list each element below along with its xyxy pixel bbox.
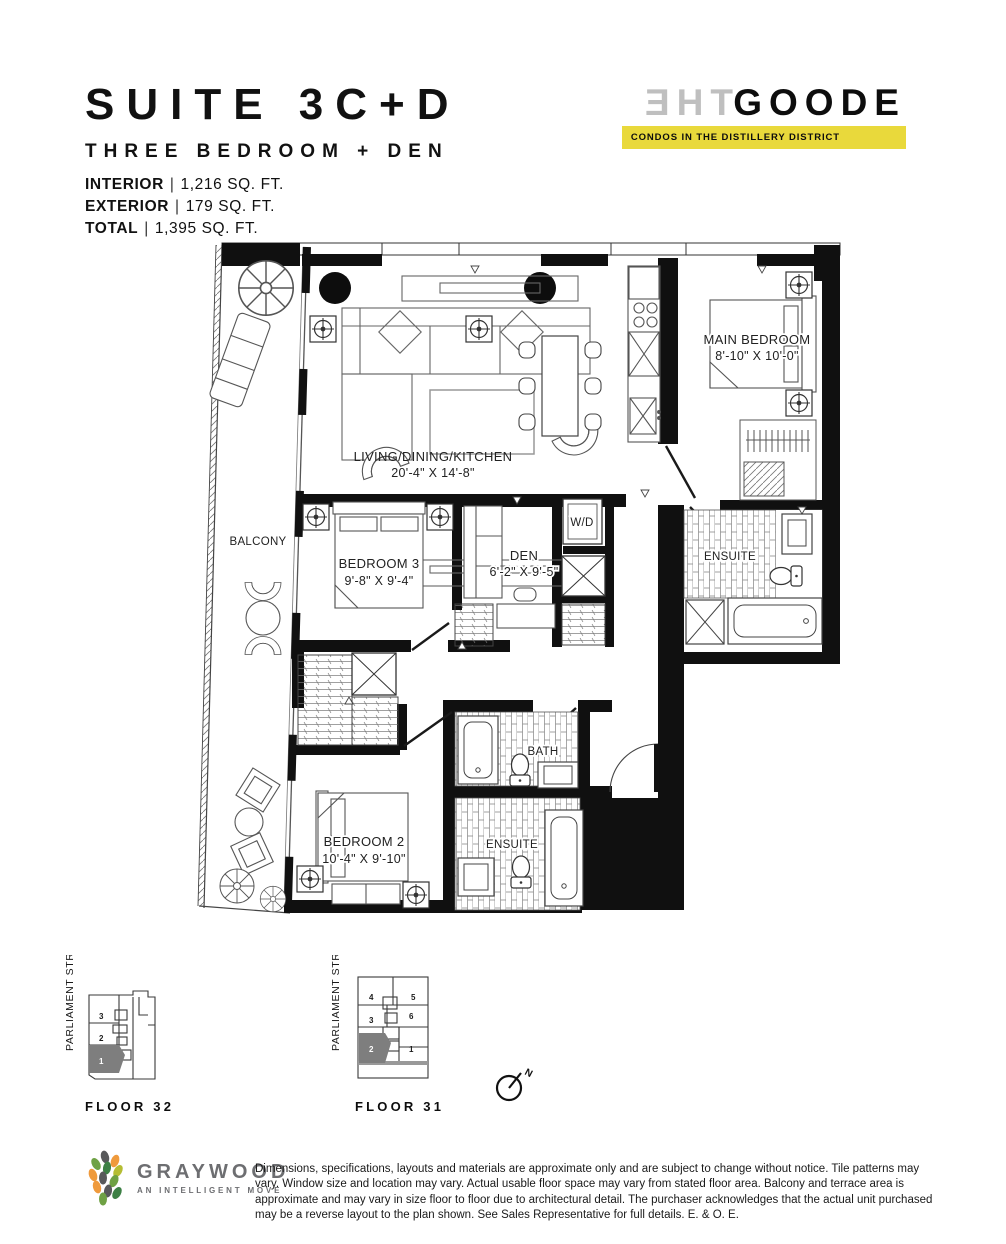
dims-den: 6'-2" X 9'-5"	[490, 565, 559, 579]
dims-bedroom3: 9'-8" X 9'-4"	[345, 574, 414, 588]
label-balcony: BALCONY	[229, 536, 286, 548]
unit-number-highlighted: 2	[369, 1045, 374, 1054]
ensuite2	[455, 798, 583, 910]
suite-title: SUITE 3C+D	[85, 82, 461, 128]
stat-exterior: EXTERIOR|179 SQ. FT.	[85, 196, 461, 218]
floor-caption: FLOOR 32	[85, 1099, 174, 1114]
area-stats: INTERIOR|1,216 SQ. FT. EXTERIOR|179 SQ. …	[85, 174, 461, 240]
stat-interior: INTERIOR|1,216 SQ. FT.	[85, 174, 461, 196]
light-fixture-icon	[310, 316, 336, 342]
graywood-leaves-icon	[85, 1150, 127, 1206]
label-living: LIVING/DINING/KITCHEN	[354, 449, 513, 464]
light-fixture-icon	[303, 504, 329, 530]
street-label: PARLIAMENT STREET	[330, 955, 342, 1051]
label-laundry: W/D	[570, 517, 593, 529]
unit-number: 6	[409, 1012, 414, 1021]
dims-bedroom2: 10'-4" X 9'-10"	[322, 852, 405, 866]
keyplate-floor32: PARLIAMENT STREET 3 2 1 FLOOR 32	[55, 955, 210, 1120]
dims-living: 20'-4" X 14'-8"	[391, 466, 474, 480]
balcony-furniture	[209, 261, 294, 912]
kitchen	[628, 266, 660, 442]
dims-main-bedroom: 8'-10" X 10'-0"	[715, 349, 798, 363]
light-fixture-icon	[786, 390, 812, 416]
floor-caption: FLOOR 31	[355, 1099, 444, 1114]
floorplan-page: { "header": { "suite_title": "SUITE 3C+D…	[0, 0, 1006, 1244]
brand-wordmark: THEGOODE	[622, 84, 906, 122]
floor-plan: LIVING/DINING/KITCHEN 20'-4" X 14'-8" MA…	[185, 233, 865, 933]
label-ensuite-main: ENSUITE	[704, 551, 756, 563]
highlighted-unit	[359, 1033, 391, 1063]
unit-number: 5	[411, 993, 416, 1002]
brand-goode: GOODE	[733, 82, 906, 123]
main-closet	[740, 420, 816, 500]
street-label: PARLIAMENT STREET	[64, 955, 76, 1051]
label-bedroom2: BEDROOM 2	[324, 834, 405, 849]
light-fixture-icon	[466, 316, 492, 342]
label-ensuite2: ENSUITE	[486, 839, 538, 851]
columns	[319, 272, 556, 304]
window-band	[222, 243, 840, 255]
title-block: SUITE 3C+D THREE BEDROOM + DEN INTERIOR|…	[85, 82, 461, 240]
label-main-bedroom: MAIN BEDROOM	[704, 332, 811, 347]
keyplate-floor31: PARLIAMENT STREET 4 5 3 6 2 1 FLOOR 31	[325, 955, 490, 1120]
light-fixture-icon	[297, 866, 323, 892]
light-fixture-icon	[427, 504, 453, 530]
brand-tagline: CONDOS IN THE DISTILLERY DISTRICT	[622, 126, 906, 149]
unit-number-highlighted: 1	[99, 1057, 104, 1066]
unit-number: 3	[369, 1016, 374, 1025]
bath	[455, 712, 578, 788]
unit-number: 3	[99, 1012, 104, 1021]
north-arrow: N	[488, 1060, 538, 1108]
brand-the-mirrored: THE	[638, 84, 733, 122]
label-den: DEN	[510, 548, 538, 563]
label-bedroom3: BEDROOM 3	[339, 556, 420, 571]
dining-set	[519, 336, 601, 436]
unit-number: 2	[99, 1034, 104, 1043]
disclaimer-text: Dimensions, specifications, layouts and …	[255, 1162, 935, 1224]
bedroom3-furniture	[333, 502, 425, 608]
unit-number: 4	[369, 993, 374, 1002]
label-bath: BATH	[527, 746, 558, 758]
unit-number: 1	[409, 1045, 414, 1054]
light-fixture-icon	[786, 272, 812, 298]
highlighted-unit	[89, 1045, 125, 1073]
brand-logo: THEGOODE CONDOS IN THE DISTILLERY DISTRI…	[622, 84, 906, 149]
suite-subtitle: THREE BEDROOM + DEN	[85, 141, 461, 163]
compass-label: N	[523, 1067, 535, 1080]
light-fixture-icon	[403, 882, 429, 908]
main-ensuite	[684, 510, 822, 644]
